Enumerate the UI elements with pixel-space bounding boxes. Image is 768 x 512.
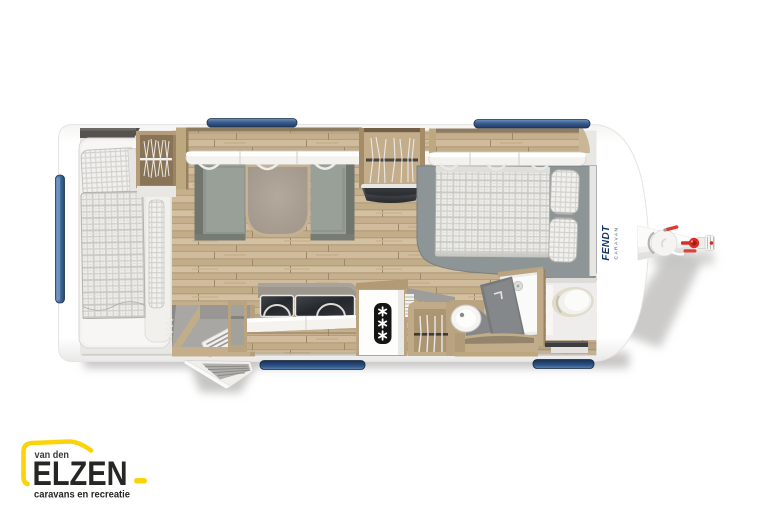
svg-text:FENDT: FENDT [601,225,612,261]
svg-text:ELZEN: ELZEN [33,455,128,493]
svg-text:CARAVAN: CARAVAN [614,227,620,260]
svg-text:caravans en recreatie: caravans en recreatie [34,490,130,501]
